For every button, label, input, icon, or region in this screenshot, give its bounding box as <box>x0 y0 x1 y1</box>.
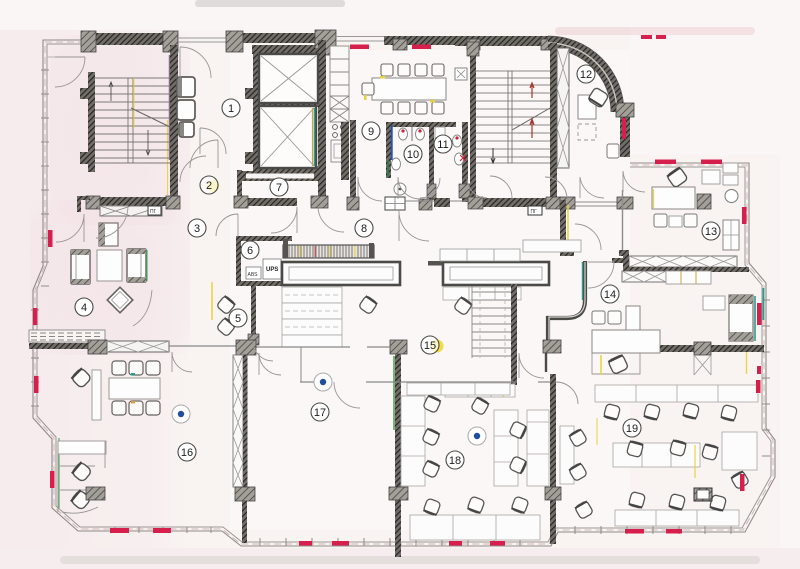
svg-text:17: 17 <box>314 407 326 419</box>
svg-text:5: 5 <box>235 313 241 325</box>
svg-text:UPS: UPS <box>266 267 278 273</box>
svg-text:6: 6 <box>247 245 253 257</box>
svg-text:1: 1 <box>228 103 234 115</box>
svg-text:16: 16 <box>181 447 193 459</box>
svg-text:9: 9 <box>368 126 374 138</box>
svg-text:ПГ: ПГ <box>531 209 538 215</box>
svg-text:3: 3 <box>194 223 200 235</box>
svg-text:ПГ: ПГ <box>150 209 157 215</box>
svg-text:13: 13 <box>705 226 717 238</box>
svg-text:4: 4 <box>81 302 87 314</box>
svg-text:18: 18 <box>449 455 461 467</box>
svg-text:11: 11 <box>437 139 448 151</box>
svg-text:2: 2 <box>206 180 212 192</box>
svg-text:14: 14 <box>604 289 616 301</box>
svg-text:19: 19 <box>626 423 638 435</box>
svg-text:10: 10 <box>407 149 419 161</box>
svg-text:12: 12 <box>580 69 592 81</box>
svg-text:ABS: ABS <box>248 272 259 278</box>
svg-text:8: 8 <box>361 223 367 235</box>
svg-text:7: 7 <box>276 182 282 194</box>
svg-text:15: 15 <box>424 340 436 352</box>
